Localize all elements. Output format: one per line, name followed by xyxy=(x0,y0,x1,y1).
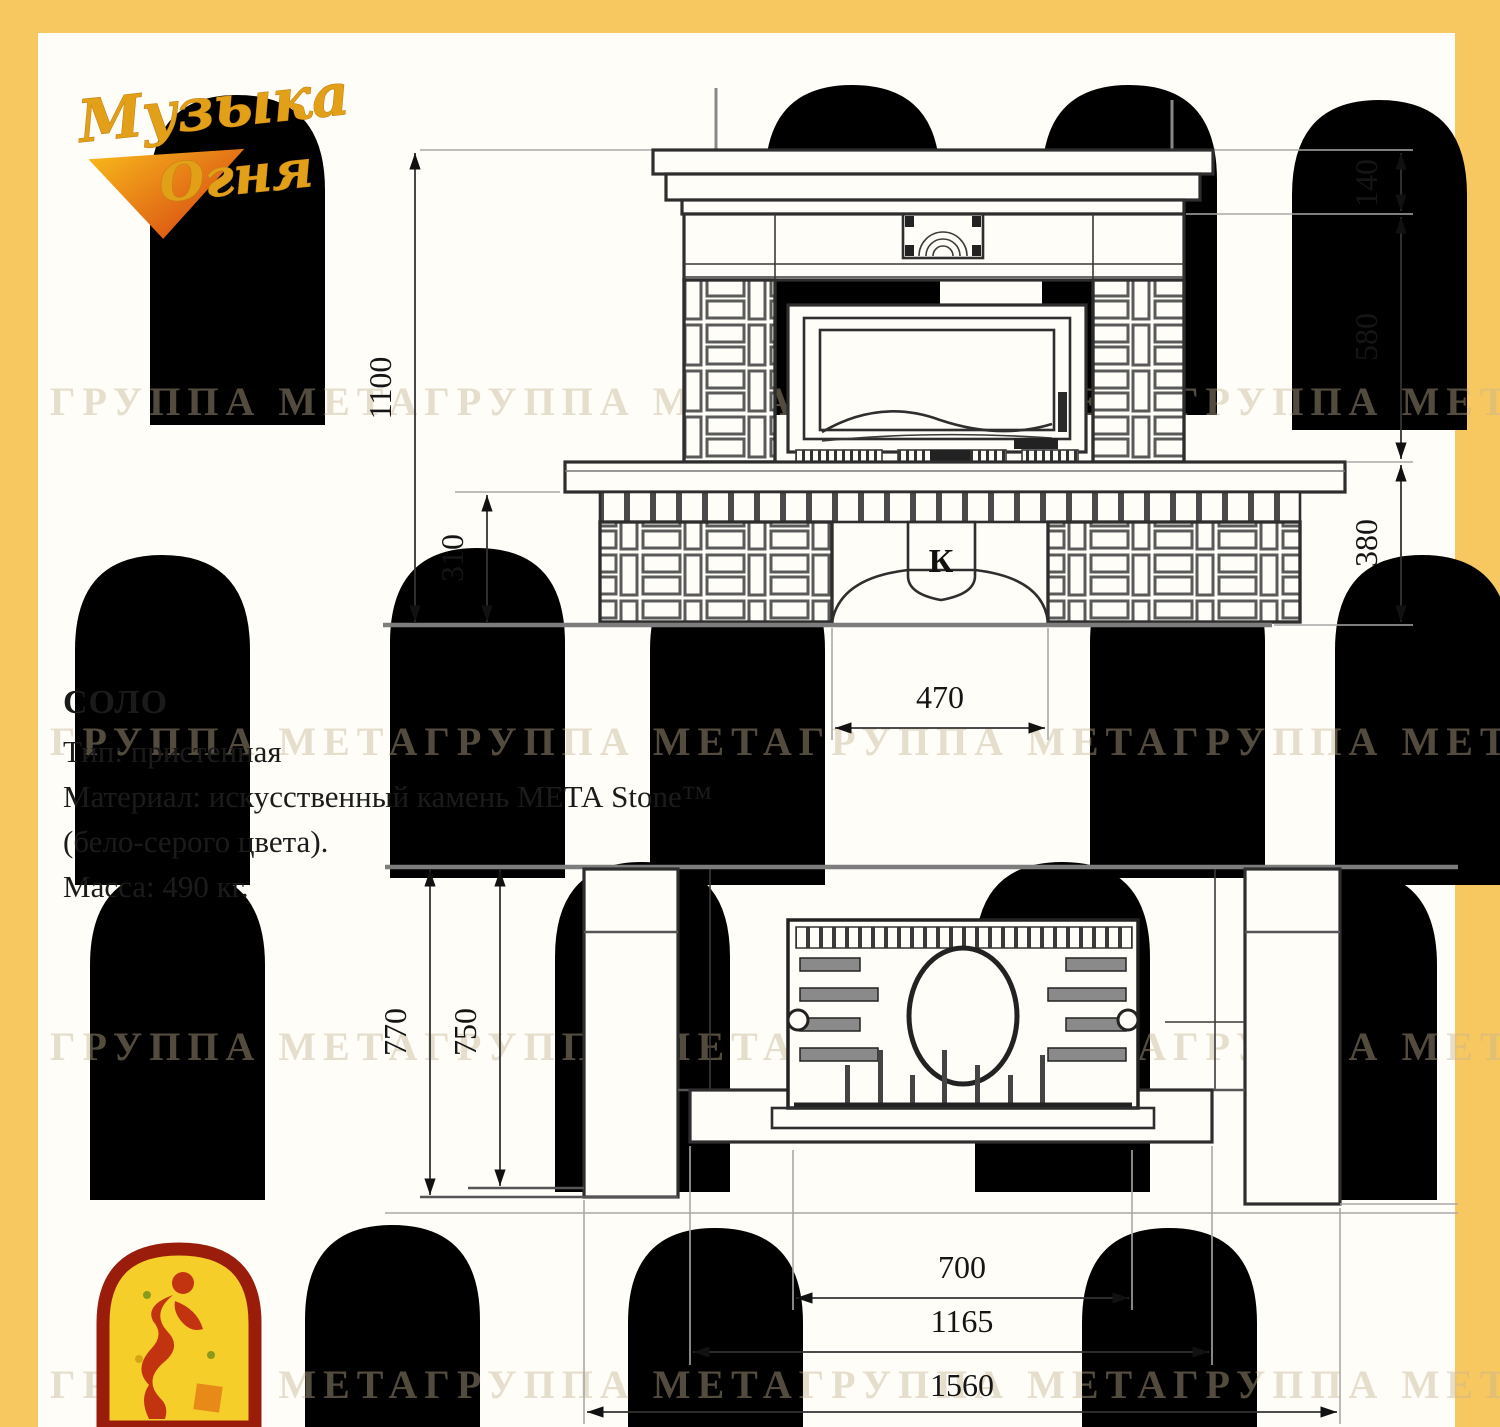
spec-material-note: (бело-серого цвета). xyxy=(63,819,712,864)
product-name: СОЛО xyxy=(63,680,712,725)
dim-depth-inner: 750 xyxy=(447,1008,483,1056)
emblem-speck xyxy=(207,1351,215,1359)
dim-cornice-height: 140 xyxy=(1348,159,1384,207)
dim-base-height: 380 xyxy=(1348,519,1384,567)
spec-material: Материал: искусственный камень МЕТА Ston… xyxy=(63,774,712,819)
dim-body-width: 1165 xyxy=(931,1303,994,1339)
dim-pedestal-width: 470 xyxy=(916,679,964,715)
door-latch-bar xyxy=(1014,438,1058,449)
frieze-band xyxy=(684,214,1184,280)
firebox-door xyxy=(788,305,1086,452)
base: К xyxy=(600,522,1300,622)
right-column xyxy=(1093,280,1184,462)
insert-hinge-row xyxy=(796,927,1132,948)
plan-insert xyxy=(772,920,1154,1128)
dim-hearth-height: 310 xyxy=(434,534,470,582)
base-left-panel xyxy=(600,522,832,622)
door-handle xyxy=(1058,392,1067,432)
hearth-slab xyxy=(565,462,1345,492)
dancer-head xyxy=(172,1272,194,1294)
watermark-row: ГРУППА МЕТАГРУППА МЕТАГРУППА МЕТАГРУППА … xyxy=(50,1362,1500,1407)
insert-bolt xyxy=(788,1010,808,1030)
dim-opening-width: 700 xyxy=(938,1249,986,1285)
emblem-speck xyxy=(143,1291,151,1299)
plan-left-pedestal xyxy=(584,869,678,1197)
plan-view: 770 750 700 1165 1560 xyxy=(377,867,1458,1424)
brand-shield: К xyxy=(908,522,975,600)
base-right-panel xyxy=(1048,522,1300,622)
dim-firebox-zone: 580 xyxy=(1348,313,1384,361)
plan-right-pedestal xyxy=(1245,869,1340,1204)
product-specs: СОЛО Тип: пристенная Материал: искусстве… xyxy=(63,680,712,909)
shield-letter: К xyxy=(929,543,954,580)
dim-total-width: 1560 xyxy=(930,1367,994,1403)
emblem-speck xyxy=(135,1355,143,1363)
spec-mass: Масса: 490 кг. xyxy=(63,864,712,909)
fire-dancer-emblem xyxy=(103,1249,255,1427)
left-column xyxy=(684,280,775,462)
spec-type: Тип: пристенная xyxy=(63,729,712,774)
cornice xyxy=(653,150,1213,214)
flue-outlet xyxy=(909,948,1017,1084)
scanned-spec-sheet: ГРУППА МЕТАГРУППА МЕТАГРУППА МЕТАГРУППА … xyxy=(0,0,1500,1427)
insert-bolt xyxy=(1118,1010,1138,1030)
emblem-ember xyxy=(193,1383,222,1412)
dim-height-total: 1100 xyxy=(362,357,398,420)
dim-depth-total: 770 xyxy=(377,1008,413,1056)
dentil-course xyxy=(600,492,1300,522)
